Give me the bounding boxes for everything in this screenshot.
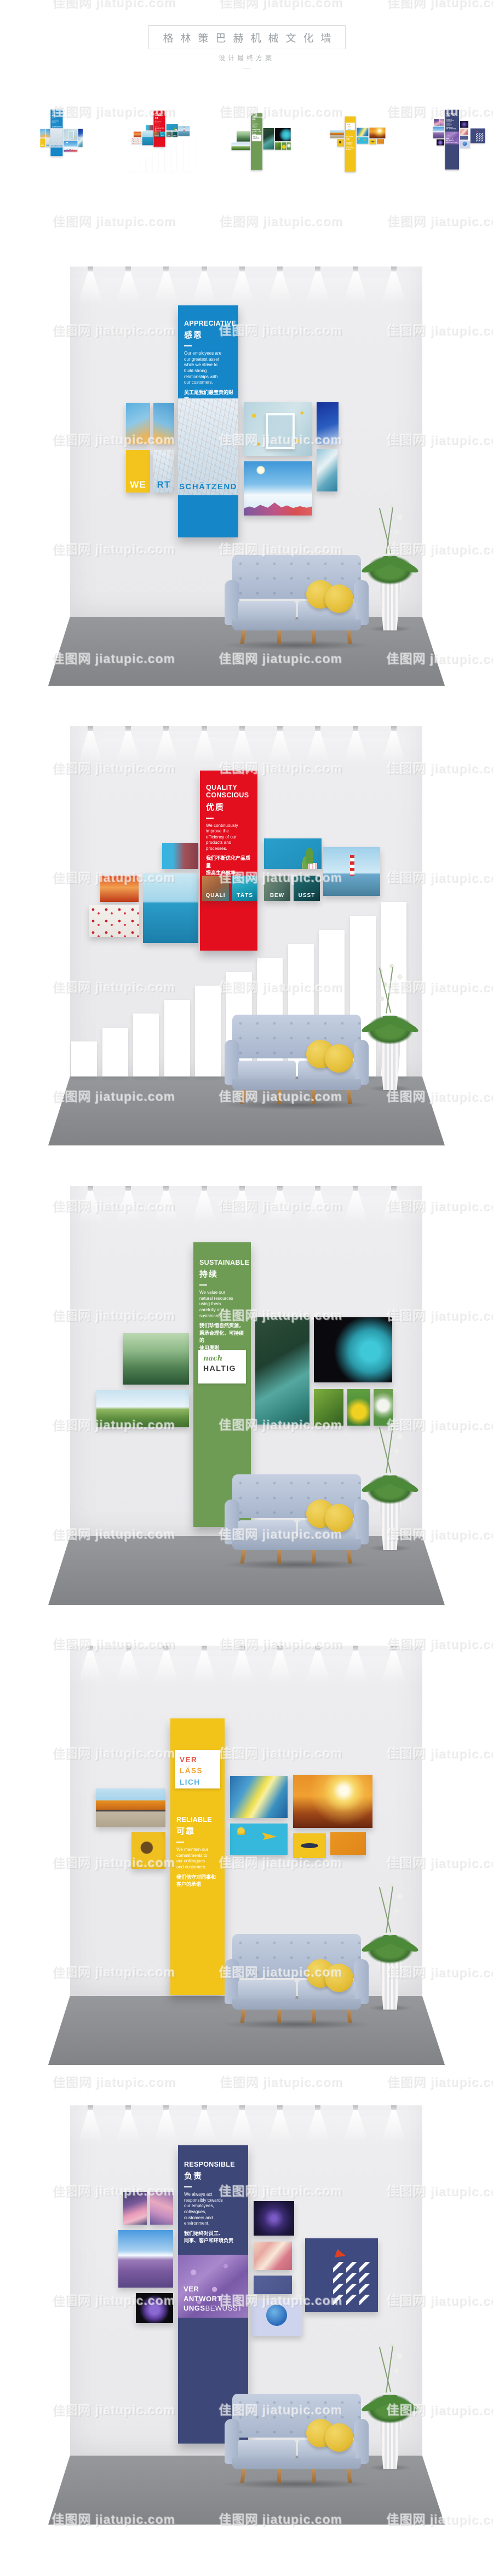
photo-moss <box>314 1389 343 1426</box>
tile-german-rt: RT <box>153 450 174 493</box>
sofa-armrest-left <box>225 1040 239 1085</box>
banner-text-block: APPRECIATIVE感恩Our employees areour great… <box>52 112 62 129</box>
photo-wind-turbines <box>96 1390 189 1427</box>
potted-plant <box>365 502 415 630</box>
plant-flowers <box>374 1881 406 1936</box>
banner-body-line: products and <box>206 840 254 846</box>
photo-sailing-ship <box>142 131 153 145</box>
photo-framed-painting <box>244 402 312 456</box>
banner-chinese-line: 我们珍惜自然资源， <box>199 1322 247 1330</box>
banner-chinese-line: 同事、客户和环境负责 <box>184 2237 244 2245</box>
photo-red-dunes <box>134 132 141 137</box>
german-word-schaetzend: SCHÄTZEND <box>50 145 62 147</box>
growth-bar <box>153 154 158 172</box>
german-line: VER <box>180 1755 215 1765</box>
banner-chinese-title: 持续 <box>199 1268 247 1280</box>
banner-chinese-body: 我们信守对同事和客户的承诺 <box>176 1874 221 1889</box>
banner-dash <box>176 1842 184 1843</box>
sofa-leg <box>312 1550 316 1564</box>
photo-low-poly <box>254 2242 292 2270</box>
banner-chinese-title: 可靠 <box>176 1825 221 1837</box>
photo-cactus-blue <box>264 838 322 869</box>
banner-body-line: and customers. <box>346 146 355 147</box>
banner-body-line: responsibly towards <box>184 2198 244 2204</box>
photo-navy-tile <box>254 2276 292 2294</box>
banner-chinese-title: 优质 <box>206 801 254 813</box>
plant-vase <box>378 1499 402 1550</box>
banner-chinese-title: 优质 <box>155 117 164 119</box>
photo-purple-flower-black <box>437 140 444 146</box>
photo-fluid-art-2 <box>45 129 50 137</box>
thumb-sustainable-green: SUSTAINABLE持续We value ournatural resourc… <box>226 102 297 173</box>
banner-text-block: SUSTAINABLE持续We value ournatural resourc… <box>252 117 261 135</box>
banner-body-line: commitments to <box>176 1853 221 1859</box>
banner-english-body: We always actresponsibly towardsour empl… <box>184 2192 244 2226</box>
photo-pink-sky-1 <box>434 119 439 126</box>
sofa-leg <box>277 2010 281 2023</box>
plant-vase <box>378 580 402 630</box>
banner-chinese-line: 客户的承诺 <box>346 149 355 150</box>
photo-pink-sky-2 <box>150 2192 173 2225</box>
watermark-text: 佳图网 jiatupic.com <box>219 2071 340 2090</box>
sofa-base <box>232 1999 361 2010</box>
german-word-verlaesslich: VERLÄSSLICH <box>346 123 355 130</box>
watermark-text: 佳图网 jiatupic.com <box>219 211 340 229</box>
sofa-armrest-left <box>225 1500 239 1544</box>
photo-fluid-art-1 <box>126 403 150 444</box>
tile-german-rt: RT <box>45 138 50 147</box>
yellow-pillow <box>325 1964 353 1992</box>
photo-forest-river <box>255 1317 309 1425</box>
photo-mustache-tile <box>293 1833 326 1858</box>
sofa-cushion <box>238 1061 296 1080</box>
yellow-pillow <box>325 584 353 613</box>
thumbnail-scaled-collage: RELIABLE可靠We maintain ourcommitments too… <box>325 102 395 172</box>
photo-globe-teamwork <box>252 2300 302 2336</box>
sofa-cushion <box>238 1520 296 1540</box>
wall-collage-quality-conscious: QUALITÄTSBEWUSSTQUALITY CONSCIOUS优质We co… <box>128 102 198 172</box>
potted-plant <box>365 962 415 1090</box>
banner-body-line: our greatest asset <box>184 357 234 363</box>
growth-bar <box>195 986 221 1076</box>
banner-english-title: RESPONSIBLE <box>446 113 458 114</box>
photo-cactus-blue <box>167 124 178 130</box>
german-main-haltig: HALTIG <box>203 1363 241 1373</box>
german-word-schaetzend: SCHÄTZEND <box>178 482 238 491</box>
photo-hummingbird-flower <box>314 1317 392 1382</box>
photo-low-poly <box>460 129 468 135</box>
photo-paint-abstract <box>317 449 337 491</box>
tile-label: BEW <box>264 893 290 899</box>
banner-text-block: APPRECIATIVE感恩Our employees areour great… <box>184 320 234 404</box>
plant-flowers <box>374 962 406 1016</box>
tile-german-we: WE <box>40 138 45 147</box>
watermark-text: 佳图网 jiatupic.com <box>219 0 340 10</box>
thumb-responsible-navy: RESPONSIBLE负责We always actresponsibly to… <box>423 102 493 173</box>
german-word-verantwortungsbewusst: VERANTWORTUNGSBEWUSST <box>446 137 457 143</box>
banner-chinese-title: 负责 <box>446 115 458 117</box>
growth-bar <box>171 146 176 172</box>
watermark-text: 佳图网 jiatupic.com <box>52 211 173 229</box>
tile-german-we: WE <box>126 450 150 493</box>
yellow-pillow <box>325 1044 353 1073</box>
german-line-bold: UNGS <box>446 142 450 143</box>
thumbnail-scaled-collage: QUALITÄTSBEWUSSTQUALITY CONSCIOUS优质We co… <box>128 102 198 172</box>
photo-deep-blue-sea <box>78 129 83 138</box>
photo-fluid-art-1 <box>40 129 45 137</box>
banner-chinese-title: 感恩 <box>52 114 62 117</box>
subtitle-divider <box>243 68 250 68</box>
tile-label: RT <box>153 479 174 490</box>
banner-body-line: our customers. <box>184 380 234 386</box>
banner-chinese-body: 我们不断优化产品质量提高生产效率 <box>206 855 254 877</box>
watermark-text: 佳图网 jiatupic.com <box>52 2071 173 2090</box>
sofa <box>225 1015 369 1111</box>
tile-german-bew: BEW <box>167 132 172 137</box>
sofa-leg <box>277 1550 281 1564</box>
banner-chinese-line: 我们不断优化产品质量 <box>206 855 254 870</box>
banner-english-title: SUSTAINABLE <box>252 117 261 118</box>
banner-chinese-body: 我们珍惜自然资源，秉承合理化、可持续的使用原则 <box>199 1322 247 1352</box>
banner-body-line: relationships with <box>184 374 234 380</box>
photo-dandelion-yellow <box>282 142 286 149</box>
photo-desert-tree <box>330 130 343 138</box>
banner-text-block: SUSTAINABLE持续We value ournatural resourc… <box>199 1259 247 1352</box>
banner-chinese-line: 客户的承诺 <box>176 1881 221 1889</box>
value-banner-responsible: RESPONSIBLE负责We always actresponsibly to… <box>445 110 459 170</box>
tile-german-taets: TÄTS <box>160 132 165 137</box>
value-banner-reliable: RELIABLE可靠We maintain ourcommitments too… <box>170 1718 225 1995</box>
photo-sunflower <box>131 1832 165 1869</box>
banner-text-block: RELIABLE可靠We maintain ourcommitments too… <box>176 1816 221 1889</box>
photo-abstract-painting <box>230 1776 288 1818</box>
banner-chinese-line: 秉承合理化、可持续的 <box>199 1330 247 1345</box>
plant-vase <box>378 1959 402 2010</box>
photo-dandelion-white <box>287 142 291 149</box>
potted-plant <box>365 2341 415 2469</box>
banner-chinese-line: 同事、客户和环境负责 <box>446 128 458 130</box>
german-word-nachhaltig: nachHALTIG <box>252 135 261 141</box>
banner-chinese-title: 负责 <box>184 2170 244 2181</box>
banner-text-block: RELIABLE可靠We maintain ourcommitments too… <box>346 136 355 150</box>
banner-body-line: our customers. <box>52 124 62 125</box>
banner-body-line: using them <box>199 1301 247 1307</box>
wall-collage-reliable: RELIABLE可靠We maintain ourcommitments too… <box>325 102 395 172</box>
banner-body-line: We maintain our <box>176 1847 221 1853</box>
german-line: UNGSBEWUSST <box>184 2303 242 2313</box>
photo-orange-tile <box>330 1832 366 1855</box>
banner-body-line: We always act <box>184 2192 244 2198</box>
growth-bar <box>146 157 151 172</box>
potted-plant <box>365 1421 415 1550</box>
banner-english-body: Our employees areour greatest assetwhile… <box>184 351 234 385</box>
banner-english-title: SUSTAINABLE <box>199 1259 247 1266</box>
photo-sailing-ship <box>143 873 198 943</box>
banner-photo-section: SCHÄTZEND <box>50 128 62 147</box>
page-title-box: 格林策巴赫机械文化墙 <box>148 25 346 49</box>
sofa <box>225 2394 369 2490</box>
growth-bar <box>134 162 139 172</box>
sofa-leg <box>312 1090 316 1104</box>
sofa-armrest-left <box>225 2419 239 2464</box>
tile-label: QUALI <box>202 893 229 899</box>
tile-label: RT <box>45 144 50 147</box>
sofa-leg <box>312 630 316 644</box>
german-line-bold: UNGS <box>184 2304 205 2312</box>
photo-dandelion-white <box>374 1389 393 1426</box>
photo-wind-turbines <box>232 143 250 150</box>
photo-paper-plane-idea <box>230 1824 288 1855</box>
plant-vase <box>378 1039 402 1090</box>
banner-english-body: Our employees areour greatest assetwhile… <box>52 119 62 126</box>
german-line: LÄSS <box>180 1765 215 1776</box>
photo-deep-blue-sea <box>317 402 339 445</box>
photo-purple-flower-black <box>136 2293 173 2323</box>
sofa-armrest-left <box>225 1959 239 2004</box>
banner-dash <box>199 1284 207 1286</box>
tile-german-usst: USST <box>294 876 320 901</box>
tile-german-quali: QUALI <box>154 132 159 137</box>
tile-label: USST <box>294 893 320 899</box>
banner-body-line: carefully and sustainably. <box>199 1307 247 1319</box>
german-word-nachhaltig: nachHALTIG <box>198 1350 246 1383</box>
photo-lavender-field <box>433 127 444 138</box>
banner-body-line: build strong <box>184 368 234 374</box>
page-subtitle: 设计最终方案 <box>0 53 493 62</box>
thumbnail-scaled-collage: SUSTAINABLE持续We value ournatural resourc… <box>226 102 297 172</box>
banner-body-line: efficiency of our <box>206 835 254 841</box>
thumb-appreciative-blue: WERTAPPRECIATIVE感恩Our employees areour g… <box>29 102 100 173</box>
german-line: LICH <box>180 1777 215 1788</box>
banner-chinese-body: 我们珍惜自然资源，秉承合理化、可持续的使用原则 <box>252 129 261 135</box>
photo-red-berries <box>89 905 139 937</box>
tile-german-bew: BEW <box>264 876 290 901</box>
banner-chinese-body: 我们始终对员工、同事、客户和环境负责 <box>446 127 458 130</box>
banner-body-line: natural resources <box>199 1296 247 1302</box>
growth-bar <box>159 151 164 172</box>
banner-body-line: We continuously <box>206 823 254 829</box>
german-word-verantwortungsbewusst: VERANTWORTUNGSBEWUSST <box>184 2284 242 2313</box>
photo-red-berries <box>131 137 141 144</box>
sofa-cushion <box>238 601 296 621</box>
photo-agave-hills <box>123 1333 189 1385</box>
sofa <box>225 555 369 651</box>
plant-flowers <box>374 2341 406 2395</box>
thumbnail-scaled-collage: RESPONSIBLE负责We always actresponsibly to… <box>423 102 493 172</box>
photo-pink-sky-2 <box>439 119 444 126</box>
photo-paint-abstract <box>78 138 83 147</box>
sofa-leg <box>312 2469 316 2483</box>
banner-body-line: and customers. <box>176 1865 221 1871</box>
photo-purple-burst <box>460 121 468 128</box>
tile-label: USST <box>173 135 178 136</box>
german-line: LICH <box>347 128 354 130</box>
tile-label: QUALI <box>154 135 159 136</box>
banner-body-line: our colleagues <box>176 1859 221 1865</box>
german-line: UNGSBEWUSST <box>446 141 457 143</box>
photo-dandelion-yellow <box>347 1389 370 1426</box>
value-banner-quality-conscious: QUALITY CONSCIOUS优质We continuouslyimprov… <box>200 771 257 951</box>
potted-plant <box>365 1881 415 2010</box>
photo-gradient-canvas <box>146 125 153 131</box>
banner-english-title: RELIABLE <box>346 136 355 137</box>
tile-german-taets: TÄTS <box>232 876 257 901</box>
photo-paper-plane-idea <box>357 137 368 144</box>
sofa-base <box>232 2458 361 2469</box>
growth-bar <box>165 148 170 172</box>
banner-body-line: customers and <box>184 2215 244 2221</box>
plant-flowers <box>374 1421 406 1476</box>
value-banner-sustainable: SUSTAINABLE持续We value ournatural resourc… <box>251 113 262 170</box>
photo-pink-sky-1 <box>123 2192 147 2225</box>
growth-bar <box>177 142 182 172</box>
value-banner-appreciative: APPRECIATIVE感恩Our employees areour great… <box>50 109 62 156</box>
banner-english-body: We continuouslyimprove theefficiency of … <box>206 823 254 852</box>
tile-german-usst: USST <box>173 132 178 137</box>
photo-mustache-tile <box>369 140 376 144</box>
photo-city-sunshine <box>64 141 77 152</box>
photo-navy-tile <box>460 136 468 140</box>
german-main-haltig: HALTIG <box>253 137 261 140</box>
banner-body-line: processes. <box>155 126 164 127</box>
photo-forest-river <box>263 128 274 149</box>
german-line-light: BEWUSST <box>450 142 458 143</box>
wall-collage-appreciative: WERTAPPRECIATIVE感恩Our employees areour g… <box>29 102 100 172</box>
banner-body-line: processes. <box>206 846 254 852</box>
tile-german-quali: QUALI <box>202 876 229 901</box>
growth-bar <box>102 1028 128 1077</box>
banner-chinese-title: 可靠 <box>346 138 355 140</box>
plant-vase <box>378 2418 402 2469</box>
sofa-leg <box>277 1090 281 1104</box>
photo-framed-painting <box>64 129 77 140</box>
banner-english-title: RESPONSIBLE <box>184 2161 244 2168</box>
banner-chinese-body: 我们信守对同事和客户的承诺 <box>346 147 355 150</box>
photo-abstract-painting <box>357 128 368 136</box>
sofa-base <box>232 1079 361 1090</box>
growth-bar <box>133 1014 159 1076</box>
banner-body-line: while we strive to <box>184 362 234 368</box>
growth-bar <box>140 159 145 172</box>
banner-english-title: QUALITY CONSCIOUS <box>206 784 254 800</box>
sofa-base <box>232 1539 361 1550</box>
german-line-light: BEWUSST <box>205 2304 243 2312</box>
photo-city-sunshine <box>244 461 312 516</box>
banner-body-line: Our employees are <box>184 351 234 357</box>
watermark-text: 佳图网 jiatupic.com <box>52 0 173 10</box>
banner-body-line: carefully and sustainably. <box>252 126 261 128</box>
sofa <box>225 1474 369 1571</box>
photo-fluid-art-2 <box>153 403 174 444</box>
banner-body-line: environment. <box>184 2221 244 2227</box>
wall-collage-sustainable: SUSTAINABLE持续We value ournatural resourc… <box>226 102 297 172</box>
tile-label: WE <box>126 479 150 490</box>
sofa-base <box>232 620 361 630</box>
sofa-leg <box>277 2469 281 2483</box>
thumb-reliable-yellow: RELIABLE可靠We maintain ourcommitments too… <box>325 102 395 173</box>
sofa-leg <box>312 2010 316 2023</box>
thumb-quality-red: QUALITÄTSBEWUSSTQUALITY CONSCIOUS优质We co… <box>128 102 198 173</box>
photo-paper-planes-leader <box>471 129 485 143</box>
banner-dash <box>184 345 192 346</box>
photo-paper-planes-leader <box>305 2238 378 2312</box>
tile-label: TÄTS <box>160 135 165 136</box>
banner-chinese-title: 感恩 <box>184 329 234 340</box>
banner-english-body: We value ournatural resourcesusing themc… <box>252 123 261 129</box>
banner-english-body: We maintain ourcommitments toour colleag… <box>346 142 355 147</box>
photo-moss <box>275 142 281 149</box>
watermark-text: 佳图网 jiatupic.com <box>387 2071 493 2090</box>
banner-body-line: environment. <box>446 125 458 126</box>
watermark-text: 佳图网 jiatupic.com <box>387 0 493 10</box>
german-script-nach: nach <box>203 1354 241 1363</box>
value-banner-reliable: RELIABLE可靠We maintain ourcommitments too… <box>345 117 356 172</box>
sofa-cushion <box>238 1980 296 2000</box>
photo-lighthouse-pier <box>178 126 190 136</box>
design-presentation-page: 格林策巴赫机械文化墙 设计最终方案 WERTAPPRECIATIVE感恩Our … <box>0 0 493 2576</box>
banner-chinese-body: 我们始终对员工、同事、客户和环境负责 <box>184 2230 244 2245</box>
banner-photo-section: VERANTWORTUNGSBEWUSST <box>445 132 459 144</box>
banner-english-title: APPRECIATIVE <box>184 320 234 327</box>
banner-english-title: RELIABLE <box>176 1816 221 1824</box>
banner-photo-section: SCHÄTZEND <box>178 398 238 495</box>
watermark-text: 佳图网 jiatupic.com <box>387 211 493 229</box>
german-word-verlaesslich: VERLÄSSLICH <box>175 1750 220 1788</box>
banner-body-line: We value our <box>199 1290 247 1296</box>
banner-chinese-title: 持续 <box>252 118 261 120</box>
growth-bar <box>71 1041 97 1076</box>
sofa-leg <box>277 630 281 644</box>
banner-body-line: improve the <box>206 829 254 835</box>
banner-text-block: RESPONSIBLE负责We always actresponsibly to… <box>184 2161 244 2245</box>
photo-purple-burst <box>254 2201 294 2236</box>
yellow-pillow <box>325 1504 353 1532</box>
banner-dash <box>206 818 214 819</box>
photo-agave-hills <box>237 131 250 142</box>
photo-globe-teamwork <box>460 141 469 148</box>
german-line: VER <box>184 2284 242 2294</box>
banner-photo-section: VERANTWORTUNGSBEWUSST <box>178 2255 248 2318</box>
photo-sunset-handstand <box>369 128 385 138</box>
banner-english-body: We value ournatural resourcesusing themc… <box>199 1290 247 1319</box>
photo-orange-tile <box>377 139 384 143</box>
banner-text-block: QUALITY CONSCIOUS优质We continuouslyimprov… <box>155 113 164 132</box>
value-banner-quality-conscious: QUALITY CONSCIOUS优质We continuouslyimprov… <box>153 111 165 147</box>
growth-bar <box>164 1000 190 1077</box>
photo-gradient-canvas <box>162 843 198 869</box>
growth-bar <box>184 140 188 172</box>
photo-lavender-field <box>118 2230 173 2288</box>
banner-body-line: colleagues, <box>184 2209 244 2215</box>
banner-english-body: We always actresponsibly towardsour empl… <box>446 119 458 126</box>
wall-collage-responsible: RESPONSIBLE负责We always actresponsibly to… <box>423 102 493 172</box>
thumbnail-scaled-collage: WERTAPPRECIATIVE感恩Our employees areour g… <box>29 102 100 172</box>
sofa-armrest-left <box>225 580 239 625</box>
photo-hummingbird-flower <box>275 128 291 141</box>
growth-bar <box>128 165 133 172</box>
tile-label: WE <box>40 144 45 147</box>
tile-label: TÄTS <box>232 893 257 899</box>
photo-red-dunes <box>100 876 139 902</box>
photo-desert-tree <box>96 1788 165 1827</box>
banner-chinese-line: 我们信守对同事和 <box>176 1874 221 1882</box>
sofa <box>225 1934 369 2030</box>
tile-label: BEW <box>167 135 172 136</box>
plant-flowers <box>374 502 406 557</box>
photo-lighthouse-pier <box>323 847 380 896</box>
photo-sunflower <box>337 139 343 146</box>
banner-english-title: QUALITY CONSCIOUS <box>155 113 164 117</box>
